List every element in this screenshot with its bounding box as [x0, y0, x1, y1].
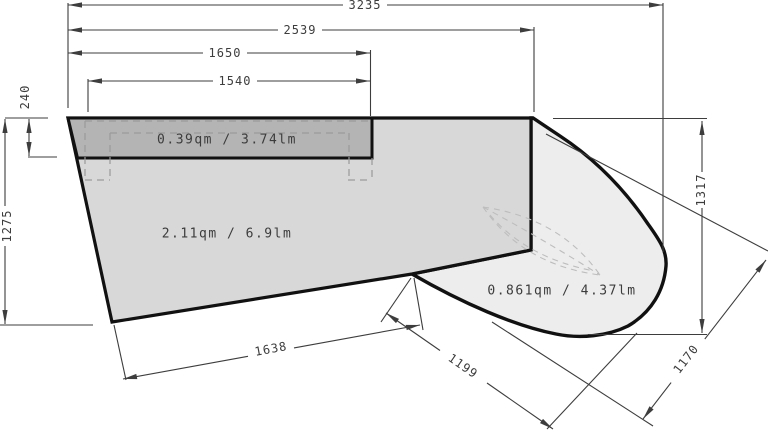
arrowhead — [699, 319, 704, 333]
extension-line — [114, 325, 126, 380]
area-label-main: 2.11qm / 6.9lm — [162, 227, 293, 242]
extension-line — [414, 278, 423, 330]
arrowhead — [406, 325, 420, 330]
arrowhead — [649, 2, 663, 7]
arrowhead — [2, 119, 7, 133]
arrowhead — [699, 121, 704, 135]
dim-line-1638 — [123, 356, 248, 379]
plan-drawing: 3235 2539 1650 1540 240 1275 1317 1638 1… — [0, 0, 768, 432]
extension-line — [547, 333, 637, 429]
arrowhead — [26, 142, 31, 156]
dim-label-2539: 2539 — [284, 23, 317, 37]
arrowhead — [386, 313, 399, 323]
dim-label-1199: 1199 — [445, 351, 480, 381]
dim-line-1638 — [294, 325, 420, 348]
dim-label-3235: 3235 — [349, 0, 382, 12]
dim-label-1650: 1650 — [209, 46, 242, 60]
arrowhead — [68, 50, 82, 55]
arrowhead — [68, 27, 82, 32]
dim-label-1170: 1170 — [670, 342, 701, 377]
arrowhead — [2, 310, 7, 324]
cad-drawing-canvas: 3235 2539 1650 1540 240 1275 1317 1638 1… — [0, 0, 768, 432]
dim-label-1317: 1317 — [694, 174, 708, 207]
plan-shapes — [68, 118, 666, 336]
dim-label-240: 240 — [18, 85, 32, 110]
area-label-strip: 0.39qm / 3.74lm — [157, 133, 297, 148]
dim-line-1170 — [705, 260, 766, 339]
arrowhead — [88, 78, 102, 83]
arrowhead — [68, 2, 82, 7]
area-label-corner: 0.861qm / 4.37lm — [487, 284, 636, 299]
dim-label-1275: 1275 — [0, 210, 14, 243]
dim-label-1638: 1638 — [254, 339, 289, 359]
arrowhead — [356, 50, 370, 55]
arrowhead — [356, 78, 370, 83]
arrowhead — [26, 119, 31, 133]
dim-label-1540: 1540 — [219, 74, 252, 88]
arrowhead — [520, 27, 534, 32]
extension-line — [381, 278, 411, 322]
